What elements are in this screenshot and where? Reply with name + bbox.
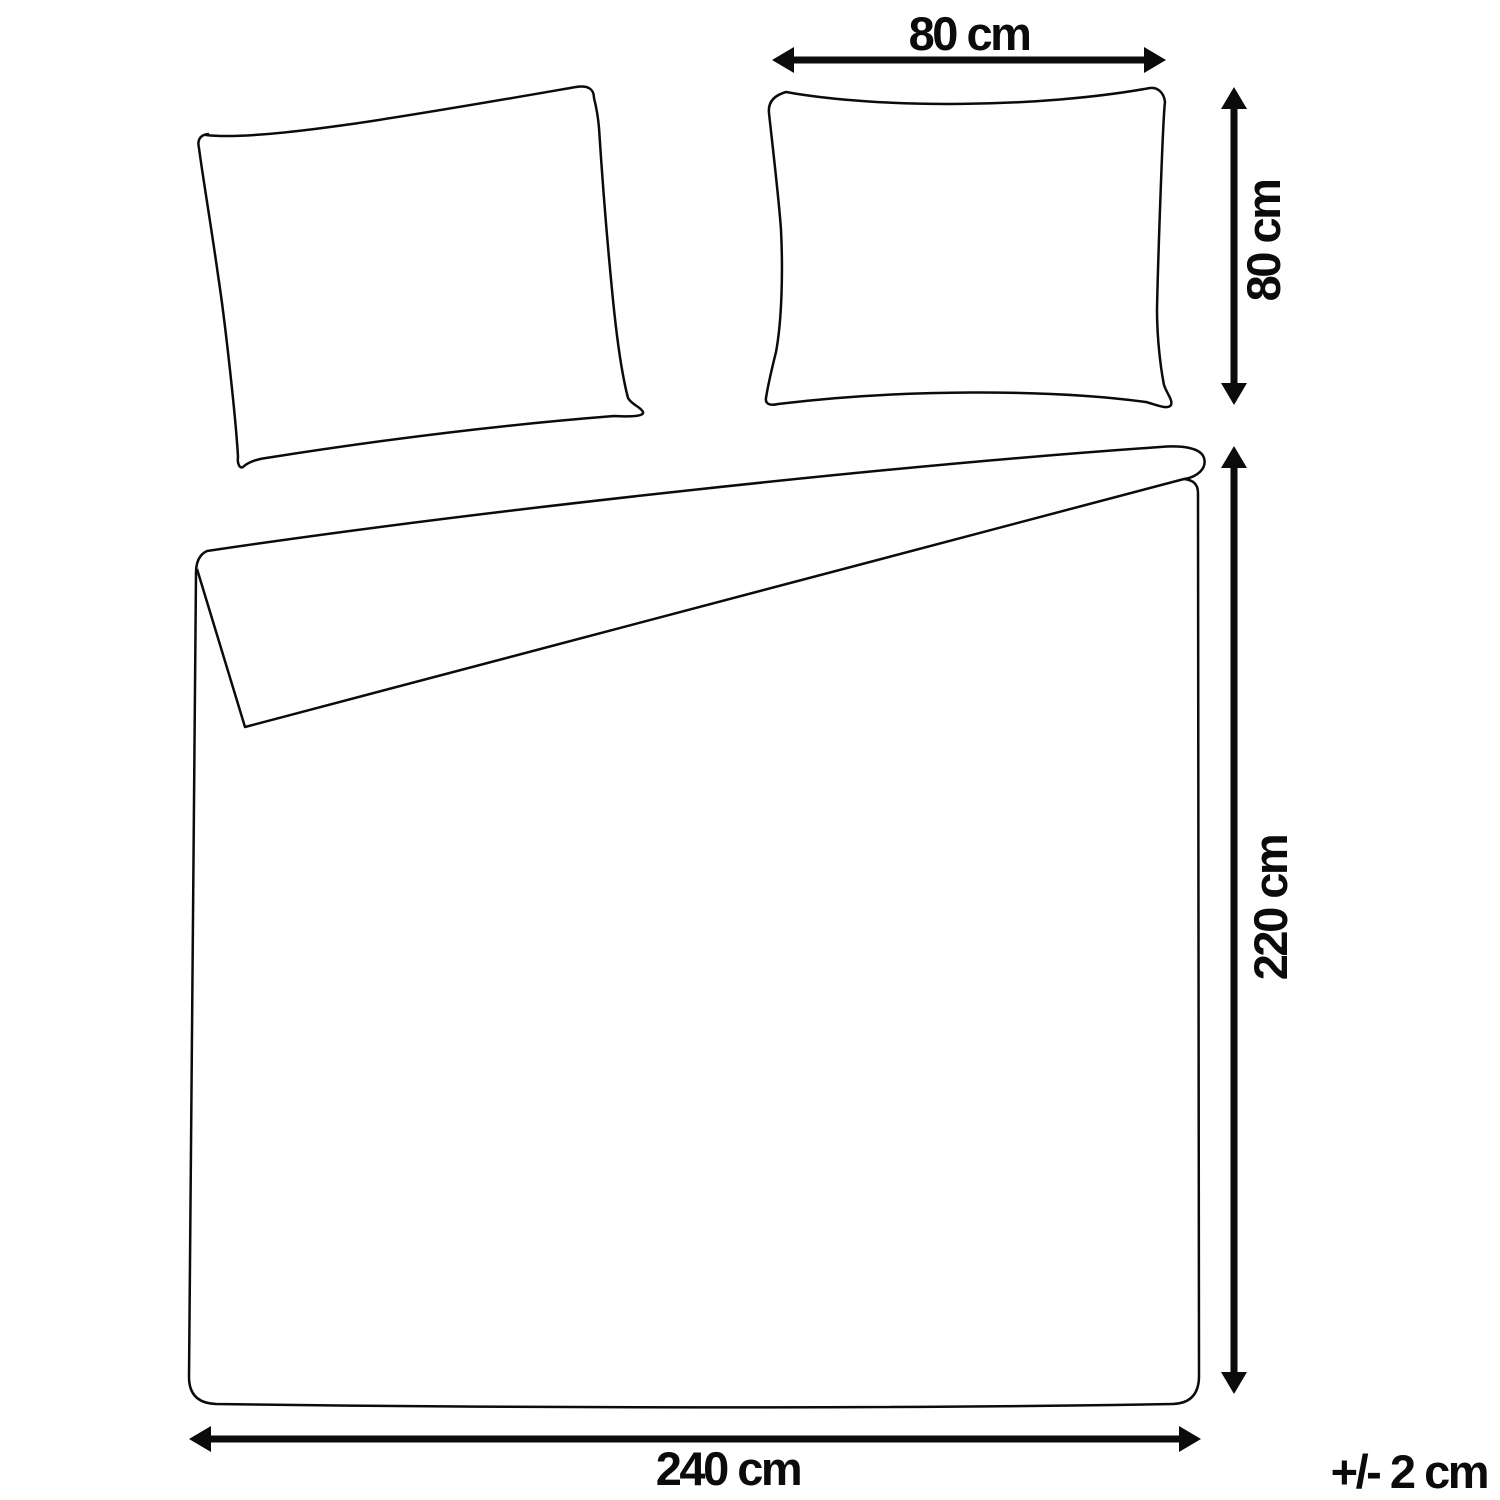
svg-text:220 cm: 220 cm bbox=[1244, 836, 1297, 980]
svg-text:80 cm: 80 cm bbox=[909, 7, 1030, 60]
svg-text:240 cm: 240 cm bbox=[656, 1442, 800, 1495]
svg-text:+/- 2 cm: +/- 2 cm bbox=[1331, 1445, 1487, 1498]
svg-text:80 cm: 80 cm bbox=[1237, 181, 1290, 302]
